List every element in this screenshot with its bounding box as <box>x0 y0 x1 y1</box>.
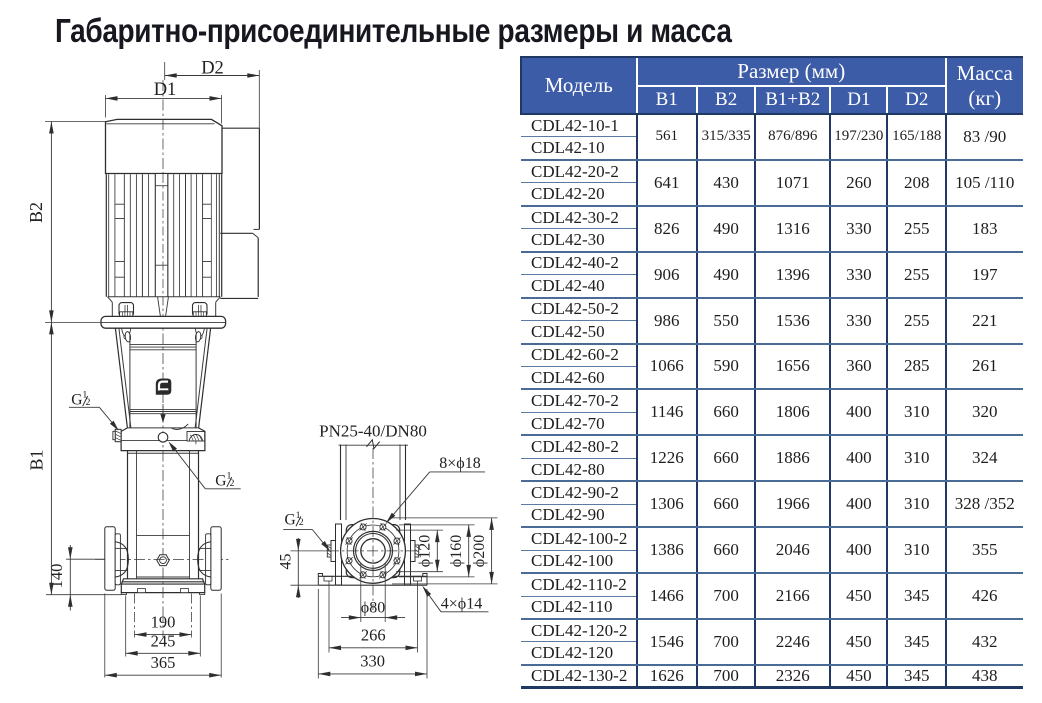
svg-text:4×ϕ14: 4×ϕ14 <box>441 595 482 612</box>
svg-text:266: 266 <box>361 626 386 645</box>
svg-text:245: 245 <box>151 631 176 650</box>
svg-text:D1: D1 <box>154 80 177 100</box>
svg-text:G: G <box>215 473 226 490</box>
svg-text:2: 2 <box>85 397 90 408</box>
svg-text:190: 190 <box>151 613 176 632</box>
svg-text:ϕ80: ϕ80 <box>361 600 385 617</box>
svg-text:G: G <box>285 512 296 529</box>
svg-text:2: 2 <box>230 478 235 489</box>
svg-text:PN25-40/DN80: PN25-40/DN80 <box>319 422 427 441</box>
svg-text:8×ϕ18: 8×ϕ18 <box>439 455 480 472</box>
svg-text:G: G <box>71 392 82 409</box>
svg-text:B2: B2 <box>26 202 46 223</box>
svg-text:D2: D2 <box>201 59 224 79</box>
svg-text:ϕ200: ϕ200 <box>471 535 488 567</box>
svg-text:ϕ160: ϕ160 <box>448 535 465 567</box>
svg-text:45: 45 <box>278 554 295 570</box>
svg-text:B1: B1 <box>27 449 47 470</box>
svg-text:2: 2 <box>299 517 304 528</box>
svg-text:ϕ120: ϕ120 <box>417 535 434 567</box>
svg-text:330: 330 <box>360 652 385 671</box>
svg-text:365: 365 <box>151 653 176 672</box>
